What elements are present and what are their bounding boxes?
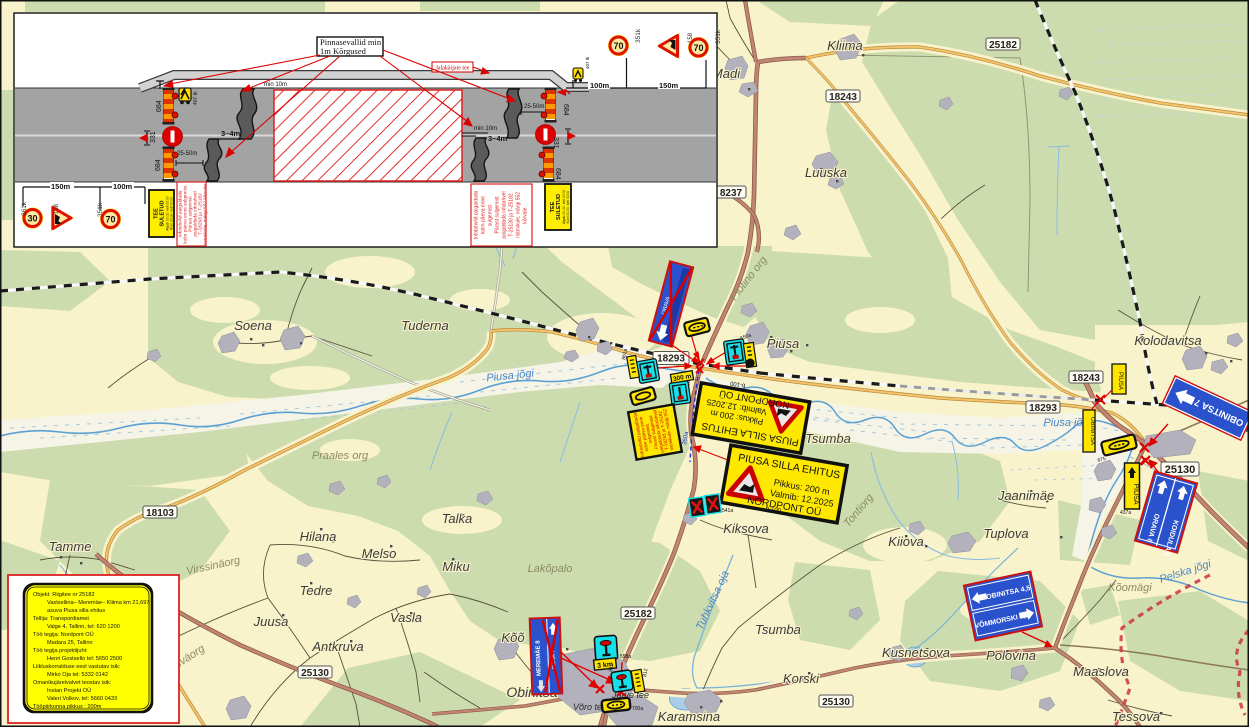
svg-text:Piusa jõ: Piusa jõ [1043, 417, 1082, 429]
svg-text:684: 684 [562, 104, 569, 116]
svg-text:30: 30 [27, 214, 37, 224]
svg-text:25130: 25130 [822, 697, 850, 708]
svg-text:Liikluskorralduse eest vastuta: Liikluskorralduse eest vastutav isik: [33, 664, 121, 670]
svg-text:Kuni 00.00. kell 00:00: Kuni 00.00. kell 00:00 [566, 191, 570, 224]
svg-text:min 10m: min 10m [264, 82, 287, 88]
svg-text:Miku: Miku [442, 559, 469, 574]
svg-text:100m: 100m [590, 81, 610, 90]
svg-text:Tsumba: Tsumba [805, 431, 851, 446]
svg-text:Talka: Talka [442, 511, 473, 526]
svg-text:407 tk: 407 tk [193, 91, 199, 105]
svg-text:Tamme: Tamme [49, 539, 92, 554]
svg-text:25-50m: 25-50m [177, 151, 197, 157]
svg-text:18293: 18293 [657, 354, 685, 365]
svg-text:361k: 361k [21, 201, 28, 216]
svg-text:Omanikujärelvalvet teostav isi: Omanikujärelvalvet teostav isik: [33, 680, 112, 686]
svg-text:Tsumba: Tsumba [755, 622, 801, 637]
svg-text:25-50m: 25-50m [524, 104, 544, 110]
svg-text:Maaslova: Maaslova [1073, 664, 1129, 679]
svg-text:Mirko Oja tel: 5332 0142: Mirko Oja tel: 5332 0142 [47, 672, 108, 678]
svg-text:700a: 700a [632, 706, 643, 712]
svg-text:Töö tegija: Nordpont OÜ: Töö tegija: Nordpont OÜ [33, 631, 94, 638]
svg-text:25130: 25130 [301, 668, 329, 679]
svg-text:Kusnetsova: Kusnetsova [882, 645, 950, 660]
svg-text:684: 684 [156, 100, 163, 112]
svg-text:Kõõ: Kõõ [501, 630, 524, 645]
svg-text:Kliima: Kliima [827, 38, 862, 53]
svg-text:Kõomägi: Kõomägi [1108, 582, 1152, 594]
svg-text:100m: 100m [113, 182, 133, 191]
svg-text:Valeri Volkov, tel: 5660 0433: Valeri Volkov, tel: 5660 0433 [47, 696, 117, 702]
svg-text:684: 684 [155, 159, 162, 171]
svg-text:Soena: Soena [234, 318, 272, 333]
svg-text:Objekt: Riigitee nr 25182: Objekt: Riigitee nr 25182 [33, 592, 95, 598]
svg-text:Henri Gostsello tel: 5650 250: Henri Gostsello tel: 5650 2500 [47, 656, 122, 662]
svg-text:sulgemist.: sulgemist. [488, 204, 494, 227]
svg-text:351k: 351k [97, 202, 104, 217]
svg-text:18103: 18103 [146, 508, 174, 519]
svg-text:70: 70 [105, 215, 115, 225]
svg-text:Jaanimäe: Jaanimäe [997, 488, 1054, 503]
svg-text:Tellija: Transpordiamet: Tellija: Transpordiamet [33, 616, 89, 622]
svg-text:331: 331 [150, 131, 157, 143]
svg-text:Valge 4, Tallinn, tel: 620 120: Valge 4, Tallinn, tel: 620 1200 [47, 624, 120, 630]
svg-text:PIUSA: PIUSA [1132, 483, 1139, 504]
svg-text:min 10m: min 10m [474, 126, 497, 132]
svg-text:Korski: Korski [783, 671, 820, 686]
svg-text:558a: 558a [620, 654, 631, 660]
svg-text:paigaldada infotahvel: paigaldada infotahvel [502, 191, 508, 238]
svg-text:18243: 18243 [829, 92, 857, 103]
svg-text:Kolodavitsa: Kolodavitsa [1134, 333, 1201, 348]
svg-text:541a: 541a [722, 508, 733, 514]
svg-text:Piusa: Piusa [767, 336, 800, 351]
svg-text:684: 684 [554, 168, 561, 180]
svg-text:Madara 25, Tallinn: Madara 25, Tallinn [47, 640, 93, 646]
svg-text:MEREMÄE 8: MEREMÄE 8 [534, 640, 542, 677]
svg-text:150m: 150m [51, 182, 71, 191]
svg-text:18293: 18293 [1029, 403, 1057, 414]
svg-text:Pärast sulgemist: Pärast sulgemist [495, 196, 501, 234]
svg-text:Juusa: Juusa [253, 614, 289, 629]
svg-text:Infotahvlid paigaldada: Infotahvlid paigaldada [474, 190, 480, 239]
svg-text:Melso: Melso [362, 546, 397, 561]
svg-text:70: 70 [613, 41, 623, 51]
svg-text:437a: 437a [1120, 510, 1131, 516]
svg-text:Töö tegija projektijuht:: Töö tegija projektijuht: [33, 648, 88, 654]
svg-text:18243: 18243 [1072, 373, 1100, 384]
svg-text:351k: 351k [635, 28, 642, 43]
svg-text:Antkruva: Antkruva [311, 639, 363, 654]
svg-text:PIUSA: PIUSA [1117, 372, 1123, 390]
svg-text:351k: 351k [715, 29, 722, 44]
svg-text:Polovina: Polovina [986, 648, 1036, 663]
svg-text:8237: 8237 [720, 188, 743, 199]
svg-text:Kiksova: Kiksova [723, 521, 769, 536]
svg-text:T-25130 ja T-25182: T-25130 ja T-25182 [509, 193, 515, 236]
svg-text:Instan Projekt OÜ: Instan Projekt OÜ [47, 687, 91, 694]
svg-text:3–4m: 3–4m [221, 129, 241, 138]
svg-text:Kuni 00.00. kell 00:00: Kuni 00.00. kell 00:00 [170, 197, 174, 230]
svg-text:Tööpiirkonna pikkus : 200m: Tööpiirkonna pikkus : 200m [33, 704, 102, 710]
svg-text:ristmikule, märgi 552 kõrvale.: ristmikule, märgi 552 kõrvale. [203, 183, 209, 245]
svg-text:Tuplova: Tuplova [983, 526, 1028, 541]
svg-text:Tessova: Tessova [1112, 709, 1160, 724]
svg-text:Tuderna: Tuderna [401, 318, 448, 333]
svg-text:150m: 150m [659, 81, 679, 90]
svg-text:Tedre: Tedre [300, 583, 333, 598]
svg-text:OBINITSA: OBINITSA [1089, 417, 1095, 445]
svg-text:Karamsina: Karamsina [658, 709, 720, 724]
svg-text:Vasla: Vasla [390, 610, 422, 625]
svg-text:3–4m: 3–4m [488, 134, 508, 143]
svg-text:Hilana: Hilana [300, 529, 337, 544]
svg-text:25182: 25182 [989, 40, 1017, 51]
svg-text:Jalakäijate tee: Jalakäijate tee [436, 66, 470, 72]
svg-text:kõrvale.: kõrvale. [523, 206, 529, 224]
svg-text:Luuska: Luuska [805, 165, 847, 180]
svg-text:Praales org: Praales org [312, 450, 369, 462]
svg-text:kolm päeva enne: kolm päeva enne [481, 196, 487, 234]
svg-text:Vastseliina– Meremäe– Kliima k: Vastseliina– Meremäe– Kliima km 21,697 [47, 600, 150, 606]
svg-text:Kiiova: Kiiova [888, 534, 923, 549]
svg-text:70: 70 [693, 43, 703, 53]
svg-text:158: 158 [54, 203, 60, 214]
svg-text:25130: 25130 [1165, 464, 1196, 476]
svg-text:asuva Piusa silla ehitus: asuva Piusa silla ehitus [47, 608, 105, 614]
svg-text:407 tk: 407 tk [585, 56, 590, 69]
svg-text:ristmikule, märgi 552: ristmikule, märgi 552 [516, 192, 522, 238]
svg-text:1m Kõrgused: 1m Kõrgused [320, 46, 367, 56]
svg-text:Lakõpalo: Lakõpalo [528, 563, 573, 575]
svg-text:25182: 25182 [624, 609, 652, 620]
